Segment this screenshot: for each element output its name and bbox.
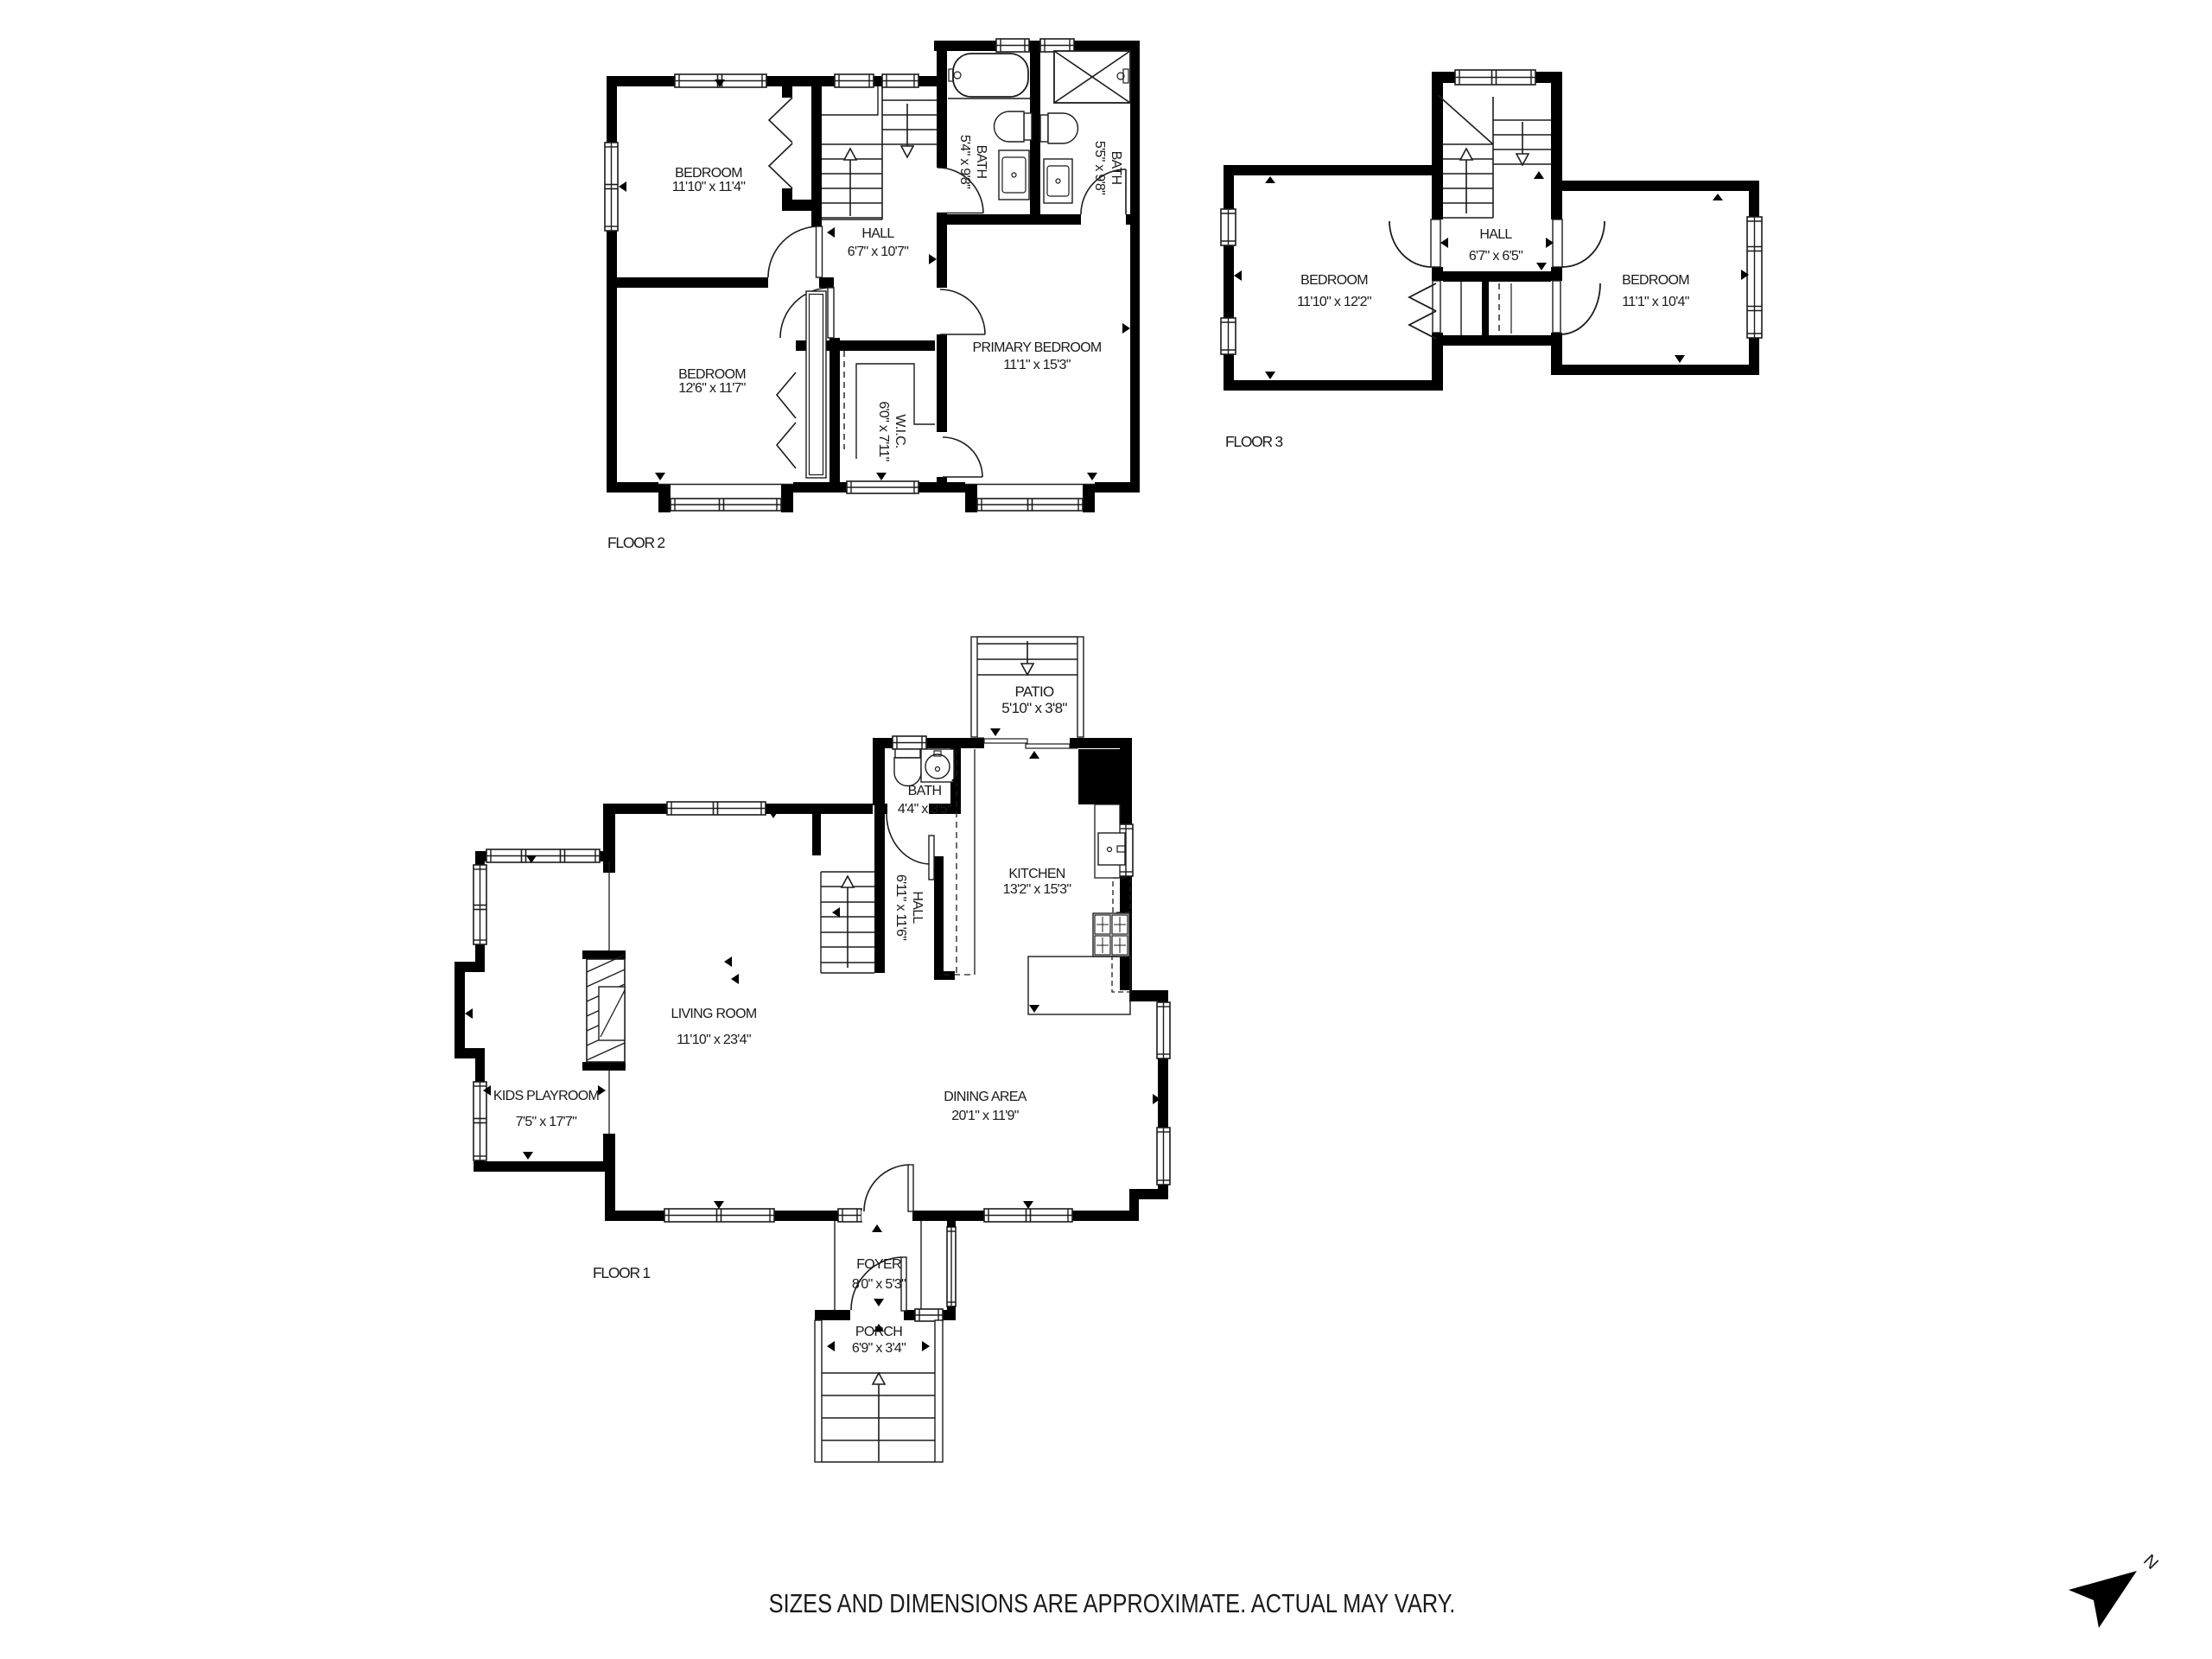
- svg-text:HALL: HALL: [861, 226, 894, 241]
- svg-text:11'10" x 11'4": 11'10" x 11'4": [672, 180, 745, 194]
- svg-text:DINING AREA: DINING AREA: [944, 1090, 1027, 1104]
- svg-text:BATH: BATH: [908, 784, 942, 798]
- svg-text:PRIMARY BEDROOM: PRIMARY BEDROOM: [973, 340, 1102, 355]
- svg-text:BEDROOM: BEDROOM: [678, 367, 746, 382]
- svg-text:KITCHEN: KITCHEN: [1008, 867, 1065, 881]
- svg-text:6'7" x 6'5": 6'7" x 6'5": [1469, 249, 1522, 264]
- svg-text:BEDROOM: BEDROOM: [1622, 273, 1689, 288]
- svg-text:W.I.C.: W.I.C.: [893, 414, 907, 448]
- svg-text:7'5" x 17'7": 7'5" x 17'7": [516, 1115, 576, 1129]
- svg-text:6'7" x 10'7": 6'7" x 10'7": [848, 245, 908, 259]
- svg-text:FOYER: FOYER: [856, 1257, 901, 1272]
- svg-text:BEDROOM: BEDROOM: [1300, 273, 1368, 288]
- svg-text:HALL: HALL: [910, 891, 925, 924]
- svg-text:11'1" x 15'3": 11'1" x 15'3": [1003, 358, 1070, 372]
- svg-text:6'9" x 3'4": 6'9" x 3'4": [852, 1341, 906, 1356]
- svg-text:20'1" x 11'9": 20'1" x 11'9": [951, 1109, 1018, 1123]
- svg-text:SIZES AND DIMENSIONS ARE APPRO: SIZES AND DIMENSIONS ARE APPROXIMATE. AC…: [769, 1589, 1456, 1618]
- svg-text:BATH: BATH: [1109, 151, 1123, 185]
- svg-text:BEDROOM: BEDROOM: [675, 166, 742, 181]
- svg-text:5'10" x 3'8": 5'10" x 3'8": [1001, 700, 1067, 716]
- svg-text:PATIO: PATIO: [1015, 683, 1054, 700]
- svg-text:HALL: HALL: [1479, 227, 1512, 242]
- svg-text:11'10" x 12'2": 11'10" x 12'2": [1297, 295, 1371, 309]
- svg-text:11'1" x 10'4": 11'1" x 10'4": [1622, 295, 1688, 309]
- svg-text:11'10" x 23'4": 11'10" x 23'4": [677, 1033, 751, 1047]
- svg-text:8'0" x 5'3": 8'0" x 5'3": [852, 1277, 906, 1292]
- svg-text:FLOOR 2: FLOOR 2: [607, 534, 664, 551]
- svg-text:FLOOR 1: FLOOR 1: [593, 1264, 650, 1281]
- svg-text:PORCH: PORCH: [855, 1325, 902, 1339]
- svg-text:KIDS PLAYROOM: KIDS PLAYROOM: [493, 1089, 600, 1103]
- svg-text:FLOOR 3: FLOOR 3: [1225, 433, 1282, 450]
- svg-text:5'4" x 9'8": 5'4" x 9'8": [957, 135, 972, 188]
- svg-text:BATH: BATH: [974, 145, 988, 179]
- svg-text:LIVING ROOM: LIVING ROOM: [671, 1007, 757, 1021]
- svg-text:6'11" x 11'6": 6'11" x 11'6": [893, 874, 908, 940]
- svg-text:13'2" x 15'3": 13'2" x 15'3": [1003, 882, 1071, 897]
- svg-text:6'0" x 7'11": 6'0" x 7'11": [876, 401, 891, 461]
- svg-text:4'4" x 3'5": 4'4" x 3'5": [898, 802, 951, 817]
- svg-text:5'5" x 9'8": 5'5" x 9'8": [1092, 141, 1107, 194]
- svg-text:12'6" x 11'7": 12'6" x 11'7": [678, 381, 745, 396]
